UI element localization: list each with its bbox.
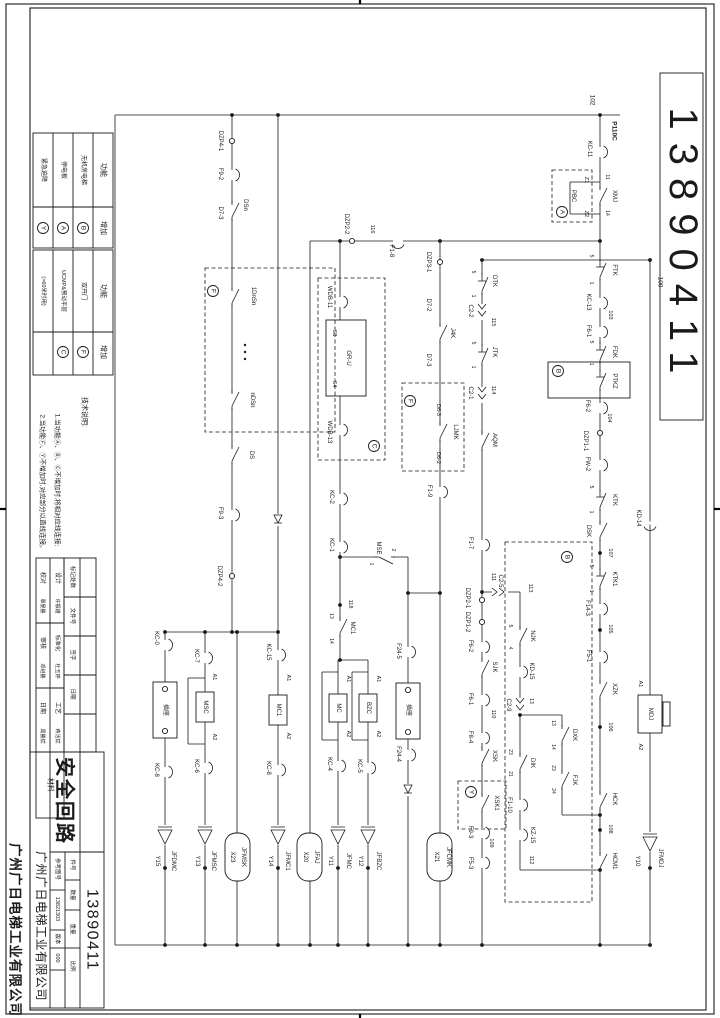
wire-label: 文件号	[69, 608, 77, 625]
wire-label: D7-3	[425, 353, 431, 367]
wire-label: 13	[328, 613, 334, 619]
schematic-sheet: 13890411功能增加无机房电梯停电板紧急迫降功能增加双开门UCMP&预动平层…	[0, 0, 720, 1018]
wire-label: 5	[507, 625, 513, 628]
wire-label: 停电板	[60, 161, 68, 179]
wire-label: Y10	[634, 856, 640, 867]
wire-label: JTK	[491, 347, 497, 358]
wire-label: DIK	[529, 758, 535, 768]
wire-label: 重量	[69, 923, 77, 935]
drawing-number-top: 13890411	[661, 108, 705, 387]
wire-label: XSK1	[493, 795, 499, 811]
wire-label: 5	[588, 255, 594, 258]
wire-label: Y15	[154, 856, 160, 867]
wire-label: D7-2	[425, 298, 431, 312]
wire-label: 功能	[100, 284, 109, 298]
wire-label: DZP4-2	[216, 566, 222, 587]
bus-label: 100	[657, 277, 664, 288]
wire-label: 104	[606, 413, 612, 422]
wire-label: 版本	[54, 933, 62, 945]
wire-label: 签字	[69, 649, 77, 661]
wire-label: J4K	[449, 328, 455, 338]
wire-label: KC-5	[356, 759, 362, 773]
wire-label: F1-10	[506, 797, 512, 813]
wire-label: FDK	[611, 346, 617, 358]
wire-label: A1	[285, 675, 291, 682]
wire-label: Y12	[357, 856, 363, 867]
bus-label: 102	[589, 95, 596, 106]
note-line: 2.当功能Ⓕ、Ⓨ不增加时,对应部分以直线连接。	[39, 414, 48, 551]
wire-label: DSK	[585, 525, 591, 537]
wire-label: 23	[550, 765, 556, 771]
wire-label: F9-2	[217, 168, 223, 181]
wire-label: F9-3	[217, 507, 223, 520]
svg-text:C: C	[371, 444, 378, 449]
wire-label: 比例	[69, 960, 77, 972]
wire-label: 蒋活斌	[54, 728, 61, 743]
wire-label: 邓继勝	[39, 663, 46, 678]
company-name-large: 广州广日电梯工业有限公司	[8, 843, 24, 1017]
wire-label: KC-2	[328, 490, 334, 504]
svg-text:C: C	[60, 350, 67, 355]
wire-label: 双开门	[80, 282, 88, 300]
wire-label: 1	[470, 295, 476, 298]
wire-label: 增加	[100, 345, 109, 359]
wire-label: 4	[507, 647, 513, 650]
wire-label: A1	[637, 681, 643, 688]
wire-label: F14-3	[584, 600, 590, 616]
wire-label: 118	[347, 600, 353, 609]
wire-label: JFMC	[345, 853, 351, 870]
wire-label: F9-3	[467, 826, 473, 839]
wire-label: 111	[490, 573, 496, 581]
wire-label: F5-3	[467, 857, 473, 870]
wire-label: Y13	[194, 856, 200, 867]
wire-label: 115	[490, 318, 496, 327]
wire-label: F5-1	[585, 650, 591, 663]
wire-label: A2	[211, 734, 217, 741]
wire-label: PBC	[570, 190, 576, 203]
wire-label: JFMSC	[210, 851, 216, 872]
bus-label: P110C	[611, 121, 618, 141]
wire-label: C2-9	[505, 698, 511, 712]
wire-label: 插座	[162, 704, 170, 716]
svg-text:F: F	[80, 350, 87, 354]
wire-label: FJK	[571, 775, 577, 786]
wire-label: C2-5	[497, 574, 503, 588]
wire-label: F6-2	[467, 640, 473, 653]
wire-label: 14	[604, 210, 610, 216]
wire-label: DZP2-1	[464, 588, 470, 609]
wire-label: MDJ	[647, 708, 653, 720]
wire-label: 1	[588, 511, 594, 514]
wire-label: MSE	[375, 541, 381, 554]
wire-label: 1	[588, 282, 594, 285]
note-line: 1.当功能Ⓐ、Ⓑ、Ⓒ不增加时,将相对应线连接;	[54, 414, 63, 547]
wire-label: Z1	[583, 177, 589, 183]
wire-label: A1	[211, 674, 217, 681]
wire-label: PTKZ	[611, 373, 617, 389]
drawing-title: 安全回路	[53, 757, 77, 845]
wire-label: 5	[470, 342, 476, 345]
wire-label: KC-8	[153, 763, 159, 777]
wire-label: 107	[607, 548, 613, 557]
wire-label: 周勝斌	[39, 728, 46, 743]
svg-text:Y: Y	[40, 226, 47, 231]
wire-label: F1-9	[426, 485, 432, 498]
wire-label: KC-15	[265, 643, 271, 661]
wire-label: AQM	[491, 433, 497, 447]
svg-text:A: A	[559, 210, 566, 215]
wire-label: 件号	[69, 859, 77, 871]
wire-label: 11	[604, 174, 610, 179]
wire-label: X20	[302, 852, 308, 863]
wire-label: KTK1	[611, 571, 617, 587]
wire-label: 插座	[405, 704, 413, 716]
wire-label: 110	[490, 710, 496, 719]
wire-label: MC1	[275, 704, 281, 717]
wire-label: KC-0	[153, 631, 159, 645]
wire-label: 无机房电梯	[80, 155, 88, 185]
wire-label: KC-11	[586, 141, 592, 158]
wire-label: D6-2	[435, 452, 441, 464]
wire-label: X21	[433, 852, 439, 863]
wire-label: 杜玉婷	[54, 663, 61, 678]
wire-label: MSC	[202, 700, 208, 714]
wire-label: 5	[470, 271, 476, 274]
wire-label: KC-13	[585, 293, 591, 311]
wire-label: GR-U	[345, 350, 351, 365]
wire-label: 覃晏勝	[39, 598, 46, 613]
wire-label: 设计	[54, 572, 62, 584]
notes-title: 技术说明:	[81, 397, 90, 427]
wire-label: JFBZC	[375, 852, 381, 871]
wire-label: JFMC1	[284, 851, 290, 871]
wire-label: 5	[588, 486, 594, 489]
wire-label: F24-5	[395, 643, 401, 659]
wire-label: A1	[345, 676, 351, 683]
wire-label: 114	[490, 386, 496, 395]
version-value: 000	[54, 953, 60, 962]
svg-text:F: F	[407, 399, 414, 403]
wire-label: 1	[588, 590, 594, 593]
wire-label: 108	[607, 824, 613, 833]
wire-label: 工艺	[54, 702, 62, 714]
svg-text:B: B	[564, 555, 571, 559]
wire-label: 14	[328, 638, 334, 644]
wire-label: (>60米时用)	[40, 276, 48, 306]
wire-label: BZC	[365, 702, 371, 715]
wire-label: F8-4	[467, 731, 473, 744]
wire-label: S4	[331, 381, 337, 388]
wire-label: C2-1	[467, 386, 473, 400]
wire-label: 1	[368, 563, 374, 566]
wire-label: XMJ	[611, 190, 617, 202]
wire-label: Y14	[267, 856, 273, 867]
wire-label: Z2	[583, 211, 589, 217]
wire-label: LJMK	[452, 424, 458, 439]
wire-label: KC-4	[326, 757, 332, 771]
wire-label: 113	[527, 584, 533, 593]
wire-label: F6-2	[584, 400, 590, 413]
wire-label: A2	[375, 731, 381, 738]
wire-label: KC-6	[193, 759, 199, 773]
wire-label: 23	[507, 749, 513, 755]
wire-label: HCM1	[611, 852, 617, 870]
wire-label: JFCMK	[445, 847, 451, 867]
wire-label: D7-3	[217, 206, 223, 220]
wire-label: S3	[331, 330, 337, 337]
wire-label: F24-4	[395, 746, 401, 762]
wire-label: KD-15	[528, 662, 534, 680]
wire-label: DZP1-1	[582, 431, 588, 452]
wire-label: JFAJ	[313, 850, 319, 863]
wire-label: JFMSK	[240, 847, 246, 867]
wire-label: DZP2-2	[343, 214, 349, 235]
wire-label: F6-1	[467, 693, 473, 706]
wire-label: KC-8	[265, 761, 271, 775]
wire-label: DTK	[491, 275, 497, 287]
wire-label: KC-1	[328, 538, 334, 552]
wire-label: 24	[550, 788, 556, 794]
company-name-small: 广州广日电梯工业有限公司	[34, 851, 48, 1001]
wire-label: F6-1	[585, 325, 591, 338]
wire-label: FTK	[611, 264, 617, 275]
wire-label: 21	[507, 771, 513, 777]
wire-label: 1	[470, 366, 476, 369]
svg-text:B: B	[555, 369, 562, 373]
wire-label: DZP3-1	[425, 252, 431, 273]
wire-label: 日期	[69, 688, 76, 700]
wire-label: 112	[528, 856, 534, 865]
wire-label: A2	[345, 731, 351, 738]
wire-label: KZ-15	[529, 827, 535, 844]
svg-text:Y: Y	[468, 790, 475, 795]
wire-label: A2	[285, 733, 291, 740]
wire-label: SJK	[491, 661, 497, 672]
wire-label: FW-2	[584, 457, 590, 472]
wire-label: MC	[335, 703, 341, 713]
wire-label: XSK	[491, 750, 497, 762]
wire-label: 校对	[39, 572, 47, 584]
wire-label: 2	[390, 549, 396, 552]
wire-label: X23	[229, 852, 235, 863]
wire-label: 紧急迫降	[40, 158, 48, 182]
wire-label: 109	[488, 838, 494, 847]
wire-label: DS	[248, 451, 254, 459]
wire-label: NJK	[529, 630, 535, 641]
wire-label: 参考图号	[54, 858, 62, 881]
svg-text:F: F	[210, 289, 217, 293]
svg-text:A: A	[60, 226, 67, 231]
wire-label: 许振雄	[54, 598, 61, 613]
wire-label: 5	[588, 565, 594, 568]
wire-label: DZP1-2	[464, 612, 470, 633]
drawing-number-block: 13890411	[84, 889, 101, 971]
wire-label: JFDMC	[170, 851, 176, 872]
wire-label: 13	[528, 698, 534, 704]
wire-label: JFMDJ	[657, 849, 663, 868]
wire-label: F1-8	[388, 245, 394, 258]
wire-label: UCMP&预动平层	[60, 270, 68, 312]
wire-label: A2	[637, 744, 643, 751]
wire-label: 5	[588, 341, 594, 344]
wire-label: 日期	[39, 702, 47, 714]
wire-label: 审核	[39, 637, 47, 649]
reference-number: 13821303	[54, 897, 60, 921]
wire-label: DZP4-1	[217, 131, 223, 152]
wire-label: HCK	[611, 793, 617, 806]
wire-label: 标准化	[54, 635, 62, 652]
svg-text:B: B	[80, 226, 87, 230]
wire-label: KD-14	[635, 509, 641, 527]
wire-label: 105	[607, 624, 613, 633]
wire-label: WDB-13	[326, 421, 332, 444]
wire-label: DSn	[242, 199, 248, 211]
wire-label: A1	[375, 676, 381, 683]
wire-label: C2-2	[467, 304, 473, 318]
wire-label: MC1	[349, 622, 355, 635]
wire-label: DXK	[571, 729, 577, 741]
wire-label: 14	[550, 744, 556, 750]
wire-label: 标记处数	[69, 566, 77, 589]
wire-label: 功能	[100, 163, 109, 177]
wire-label: KC-7	[193, 649, 199, 663]
wire-label: Y11	[327, 856, 333, 867]
wire-label: nDSn	[249, 392, 255, 407]
wire-label: 1DnSn	[250, 287, 256, 305]
wire-label: 116	[369, 225, 375, 234]
wire-label: 103	[607, 310, 613, 319]
wire-label: XZK	[611, 683, 617, 695]
wire-label: WDB-11	[326, 286, 332, 309]
wire-label: 106	[607, 722, 613, 731]
wire-label: KTK	[611, 494, 617, 506]
wire-label: 数量	[69, 889, 77, 901]
wire-label: D6-3	[435, 404, 441, 416]
wire-label: 增加	[100, 221, 109, 235]
wire-label: 13	[550, 720, 556, 726]
wire-label: F1-7	[467, 537, 473, 550]
wire-label: 1	[588, 363, 594, 366]
